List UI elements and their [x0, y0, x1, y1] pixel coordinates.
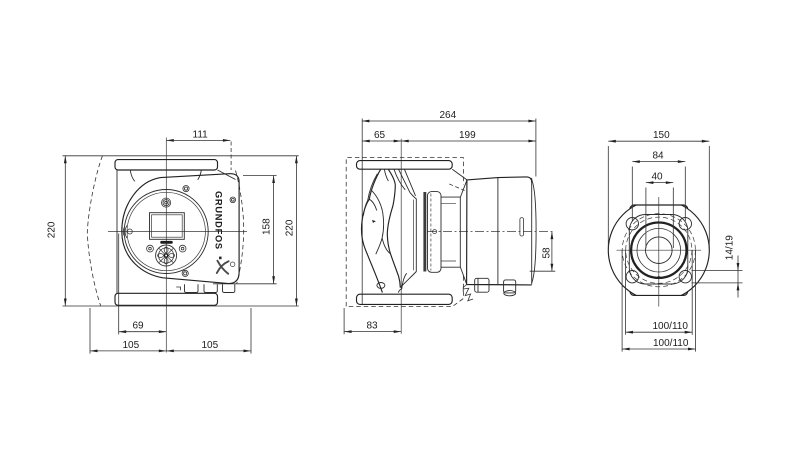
svg-text:100/110: 100/110: [653, 338, 689, 349]
svg-text:199: 199: [459, 130, 476, 141]
svg-text:83: 83: [367, 320, 379, 331]
svg-text:105: 105: [123, 340, 140, 351]
svg-text:150: 150: [653, 130, 670, 141]
svg-text:111: 111: [193, 129, 209, 140]
svg-text:14/19: 14/19: [724, 235, 735, 260]
svg-text:GRUNDFOS: GRUNDFOS: [214, 191, 224, 250]
svg-text:105: 105: [202, 340, 219, 351]
svg-text:65: 65: [374, 130, 386, 141]
svg-text:58: 58: [541, 247, 552, 259]
svg-text:84: 84: [653, 151, 665, 162]
svg-text:40: 40: [652, 171, 664, 182]
svg-text:220: 220: [47, 221, 58, 238]
svg-text:100/110: 100/110: [653, 321, 689, 332]
svg-text:220: 220: [284, 219, 295, 236]
svg-text:69: 69: [133, 321, 145, 332]
svg-text:264: 264: [440, 110, 457, 121]
svg-text:158: 158: [262, 218, 273, 235]
